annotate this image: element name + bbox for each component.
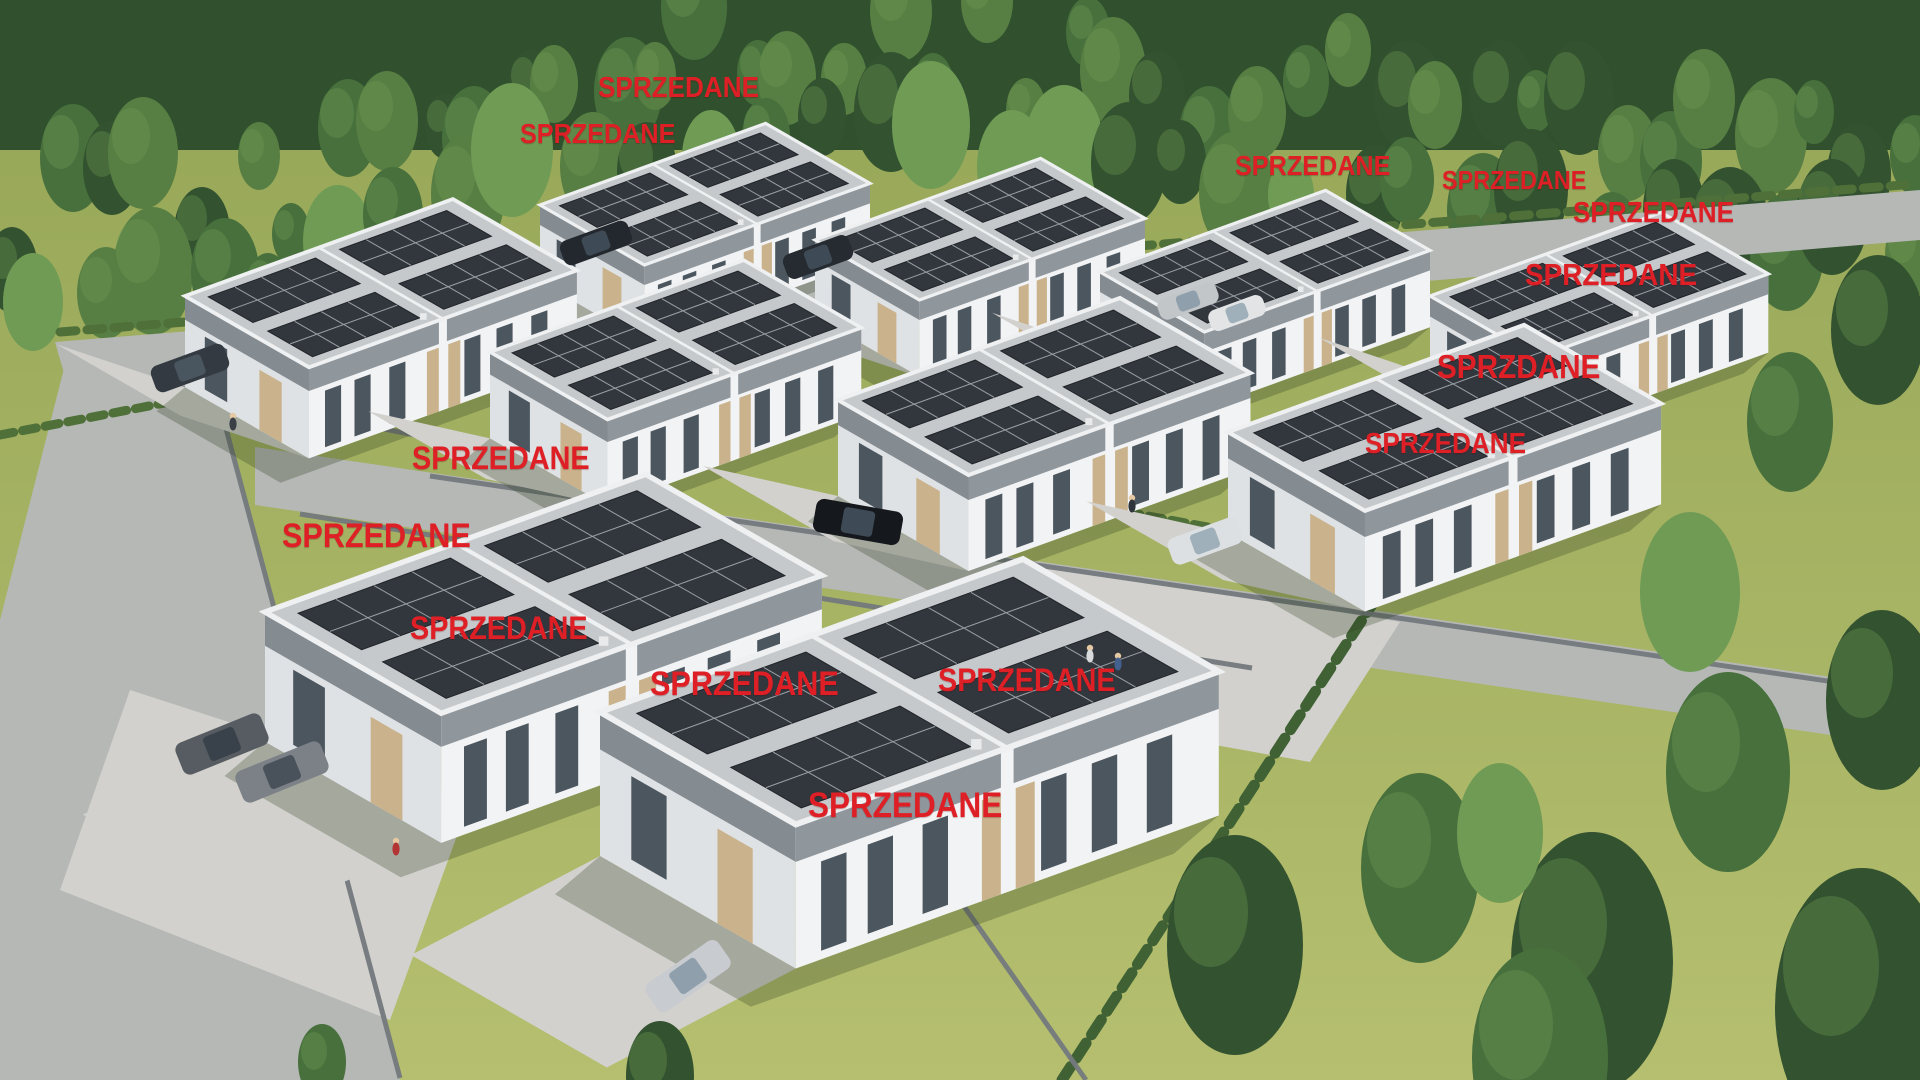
person-walk xyxy=(229,413,236,431)
development-render xyxy=(0,0,1920,1080)
person-stroller xyxy=(1128,495,1135,513)
person-kid-1 xyxy=(1086,645,1093,663)
person-kid-2 xyxy=(1114,653,1121,671)
person-red xyxy=(392,838,399,856)
estate-aerial-render: SPRZEDANESPRZEDANESPRZEDANESPRZEDANESPRZ… xyxy=(0,0,1920,1080)
